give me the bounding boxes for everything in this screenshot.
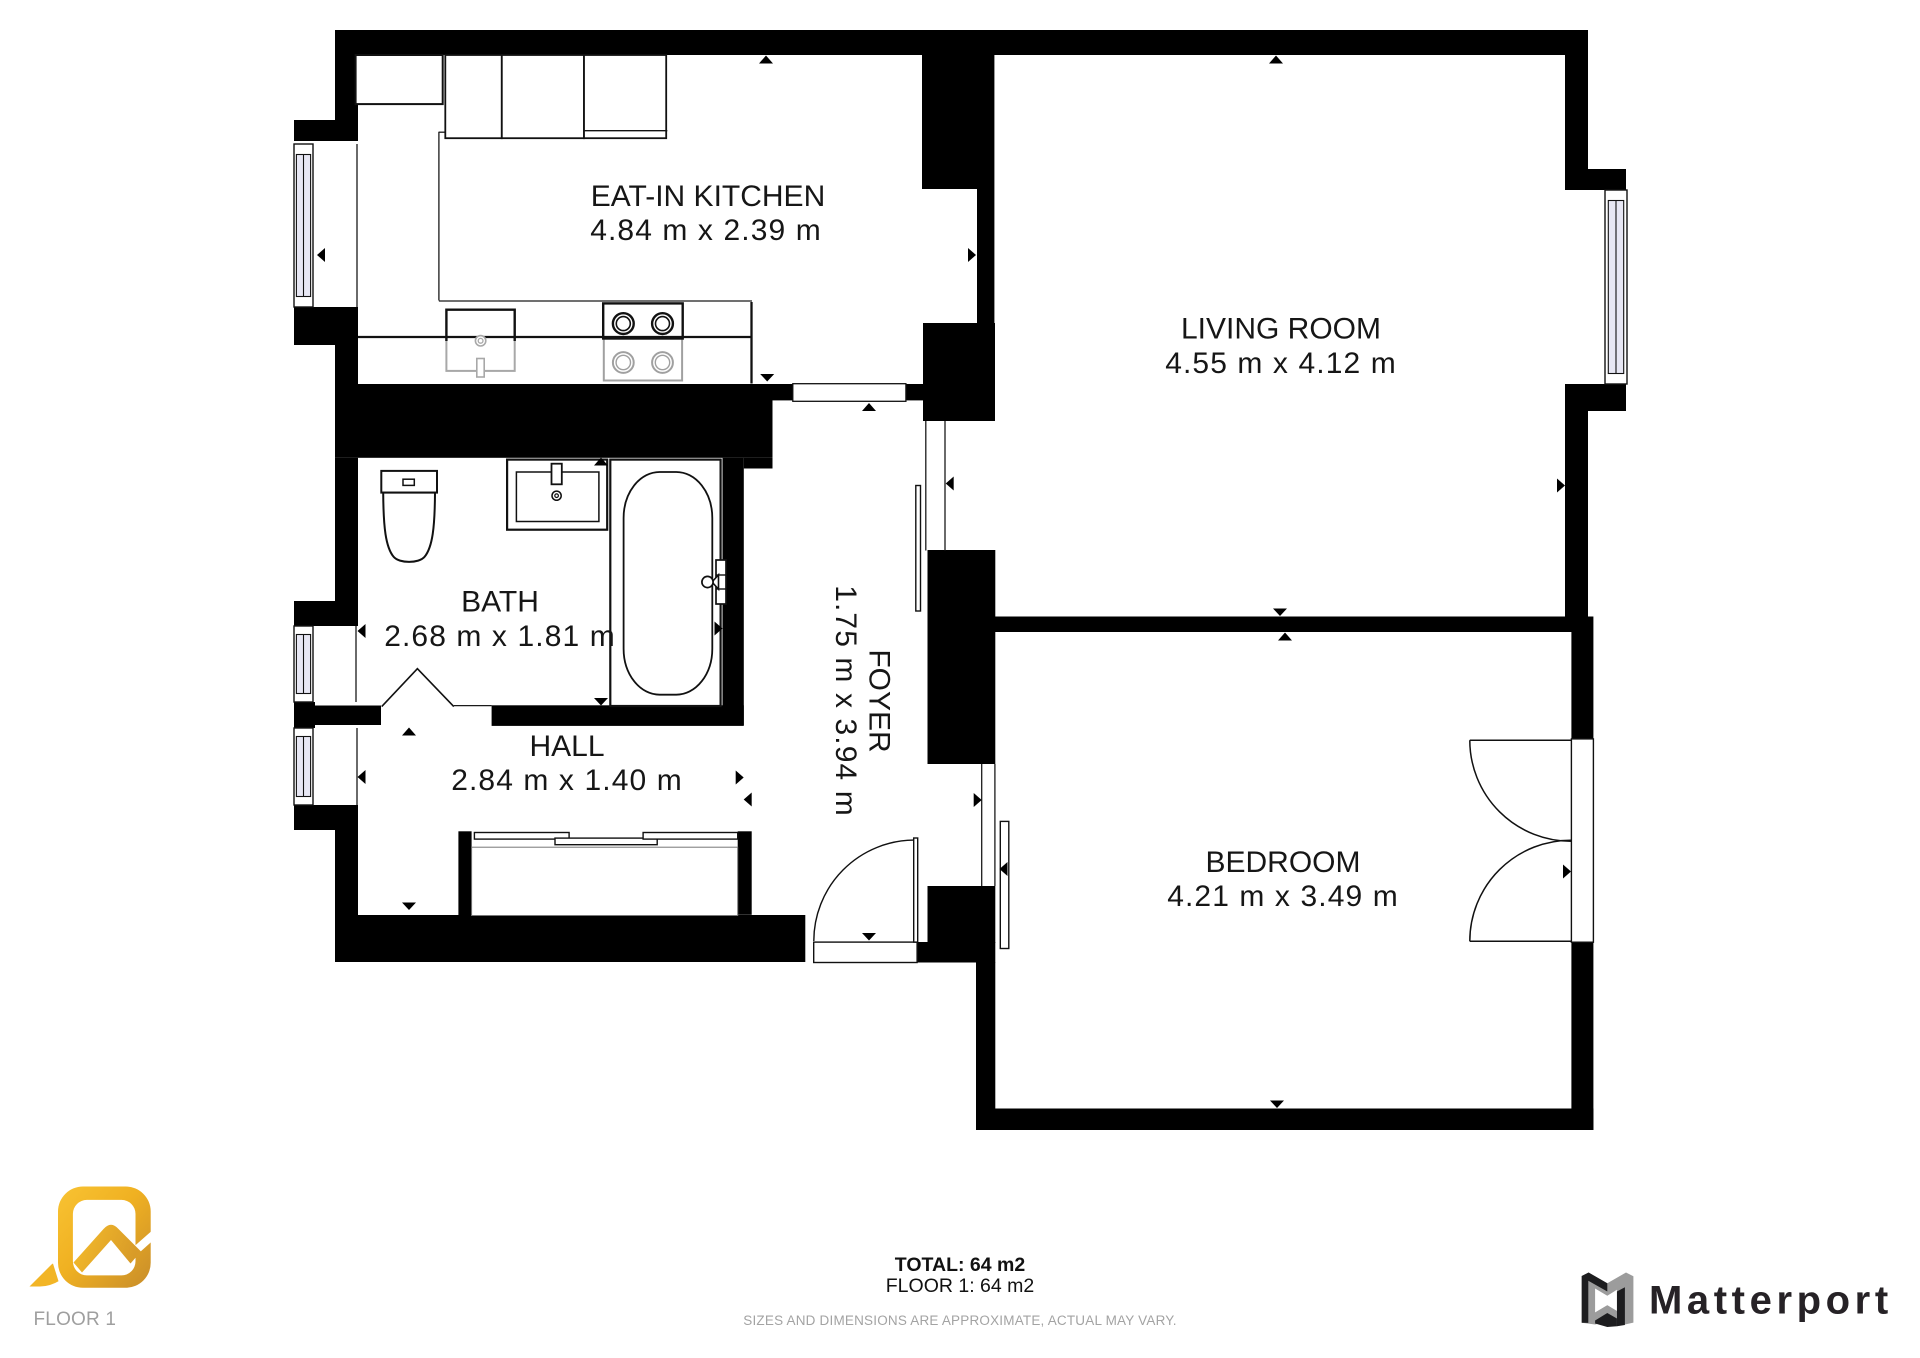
svg-text:1.75 m x 3.94 m: 1.75 m x 3.94 m: [829, 585, 862, 817]
svg-text:2.84 m x 1.40 m: 2.84 m x 1.40 m: [451, 764, 683, 797]
svg-text:BEDROOM: BEDROOM: [1205, 846, 1360, 879]
svg-text:Matterport: Matterport: [1649, 1279, 1893, 1323]
svg-text:TOTAL: 64 m2: TOTAL: 64 m2: [895, 1254, 1026, 1276]
svg-text:4.21 m x 3.49 m: 4.21 m x 3.49 m: [1167, 880, 1399, 913]
svg-text:BATH: BATH: [461, 586, 539, 619]
svg-text:SIZES AND DIMENSIONS ARE APPRO: SIZES AND DIMENSIONS ARE APPROXIMATE, AC…: [743, 1313, 1176, 1328]
svg-text:2.68 m x 1.81 m: 2.68 m x 1.81 m: [384, 620, 616, 653]
svg-text:FLOOR 1: FLOOR 1: [34, 1309, 117, 1330]
svg-text:4.84 m x 2.39 m: 4.84 m x 2.39 m: [590, 214, 822, 247]
svg-text:FOYER: FOYER: [863, 649, 896, 752]
svg-text:4.55 m x 4.12 m: 4.55 m x 4.12 m: [1165, 347, 1397, 380]
svg-text:EAT-IN KITCHEN: EAT-IN KITCHEN: [591, 180, 825, 213]
svg-text:FLOOR 1: 64 m2: FLOOR 1: 64 m2: [886, 1275, 1034, 1297]
svg-text:LIVING ROOM: LIVING ROOM: [1181, 313, 1381, 346]
svg-text:HALL: HALL: [529, 730, 604, 763]
